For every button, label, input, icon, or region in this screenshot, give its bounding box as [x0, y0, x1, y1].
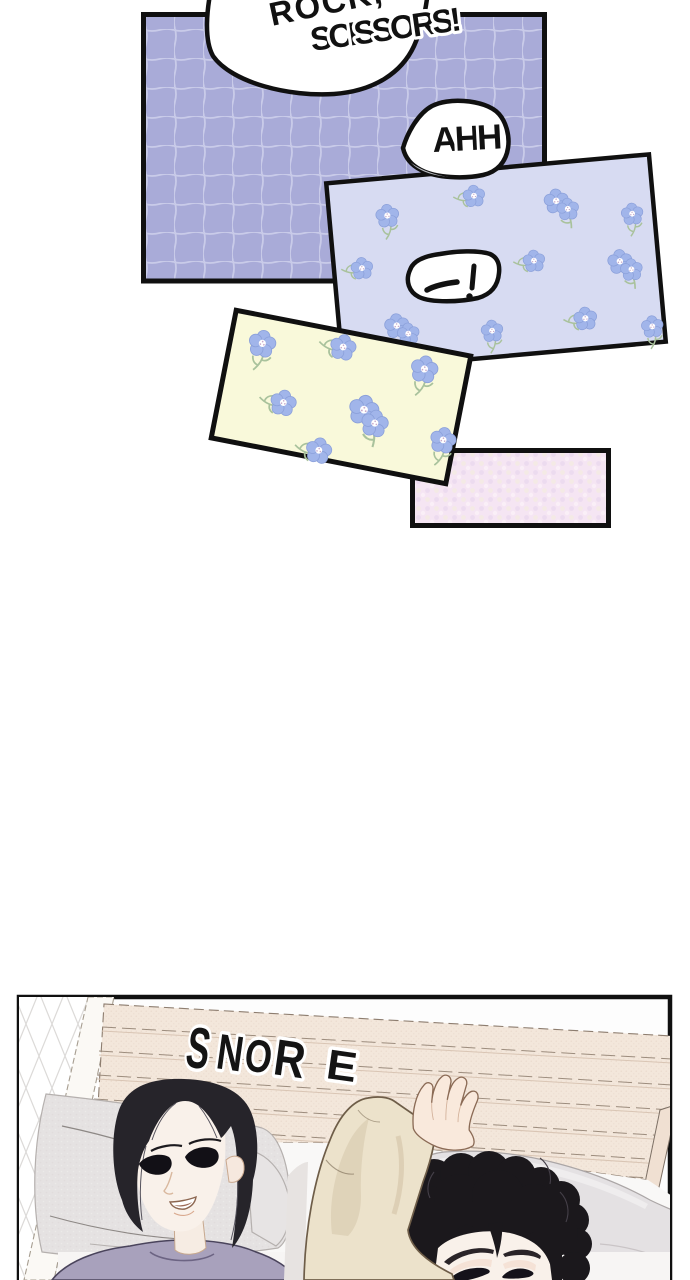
- svg-text:AHH: AHH: [431, 117, 503, 160]
